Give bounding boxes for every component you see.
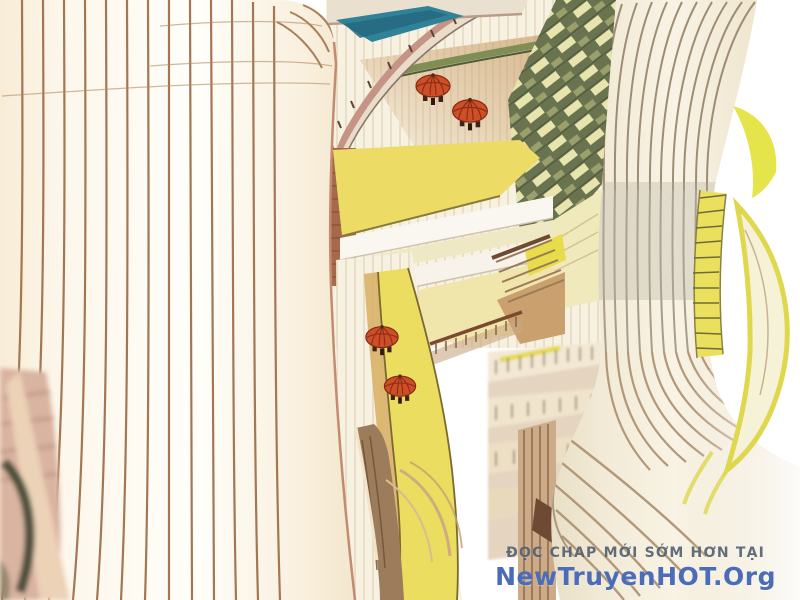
yellow-segment-band bbox=[707, 192, 713, 356]
webtoon-illustration-page: ĐỌC CHAP MỚI SỚM HƠN TẠI NewTruyenHOT.Or… bbox=[0, 0, 800, 600]
watermark-tagline: ĐỌC CHAP MỚI SỚM HƠN TẠI bbox=[495, 545, 776, 561]
illustration-canvas bbox=[0, 0, 800, 600]
watermark: ĐỌC CHAP MỚI SỚM HƠN TẠI NewTruyenHOT.Or… bbox=[495, 545, 776, 592]
watermark-site-name: NewTruyenHOT.Org bbox=[495, 563, 776, 592]
